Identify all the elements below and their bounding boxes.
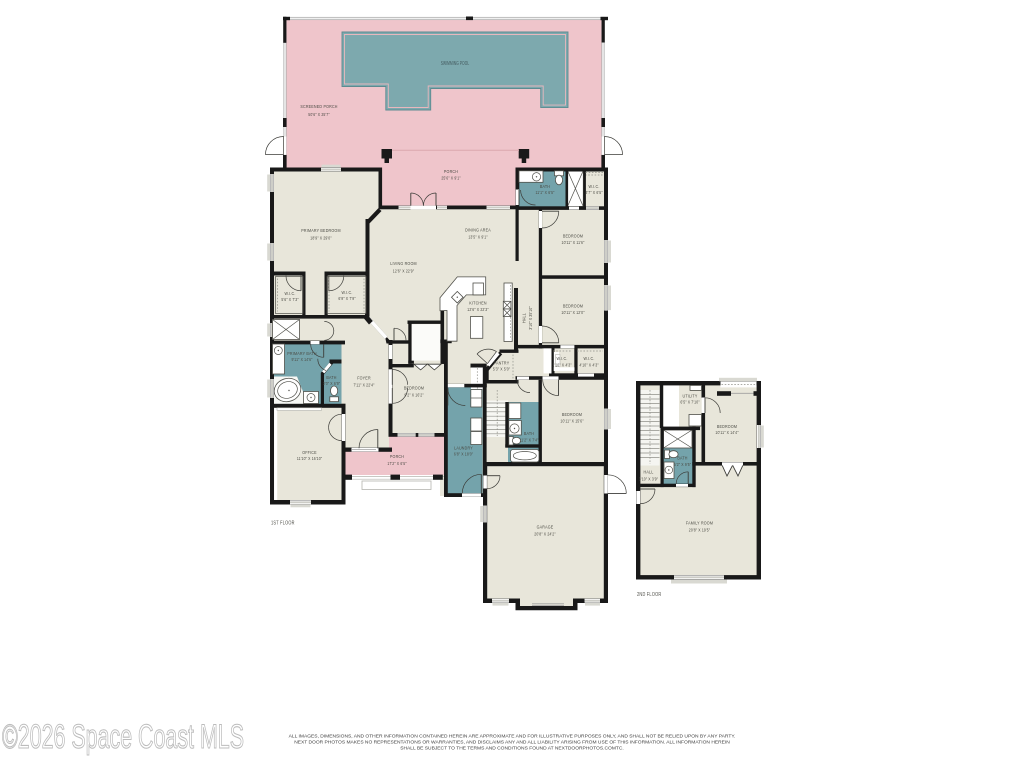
svg-text:4'10" X 4'3": 4'10" X 4'3"	[579, 363, 598, 368]
svg-text:FOYER: FOYER	[357, 376, 371, 381]
svg-text:10'11" X 11'6": 10'11" X 11'6"	[562, 240, 585, 245]
svg-text:W.I.C.: W.I.C.	[583, 356, 594, 361]
svg-text:BATH: BATH	[540, 184, 550, 189]
svg-text:20'8" X 19'5": 20'8" X 19'5"	[689, 528, 711, 533]
svg-text:3'10" X 3'9": 3'10" X 3'9"	[639, 477, 658, 482]
svg-text:12'6" X 22'3": 12'6" X 22'3"	[467, 307, 489, 312]
svg-text:OFFICE: OFFICE	[302, 450, 317, 455]
svg-text:W.I.C.: W.I.C.	[284, 291, 295, 296]
svg-text:BATH: BATH	[677, 456, 687, 461]
svg-text:W.I.C.: W.I.C.	[588, 184, 599, 189]
svg-text:LAUNDRY: LAUNDRY	[454, 446, 473, 451]
svg-text:10'11" X 12'0": 10'11" X 12'0"	[561, 310, 584, 315]
svg-text:HALL: HALL	[644, 470, 654, 475]
svg-text:NEXT DOOR PHOTOS MAKES NO REPR: NEXT DOOR PHOTOS MAKES NO REPRESENTATION…	[294, 740, 730, 746]
svg-text:11'10" X 16'10": 11'10" X 16'10"	[297, 456, 322, 461]
svg-text:BEDROOM: BEDROOM	[563, 304, 583, 309]
svg-text:9'11" X 14'6": 9'11" X 14'6"	[291, 357, 312, 362]
svg-text:13'5" X 9'1": 13'5" X 9'1"	[468, 235, 487, 240]
svg-text:11'2" X 7'4": 11'2" X 7'4"	[519, 438, 538, 443]
svg-text:PRIMARY BEDROOM: PRIMARY BEDROOM	[301, 228, 340, 233]
svg-text:BEDROOM: BEDROOM	[404, 386, 424, 391]
svg-text:1'10" X 4'3": 1'10" X 4'3"	[552, 363, 571, 368]
svg-text:2ND FLOOR: 2ND FLOOR	[637, 592, 661, 598]
svg-text:11'1" X 6'5": 11'1" X 6'5"	[535, 190, 554, 195]
svg-text:7'11" X 22'4": 7'11" X 22'4"	[353, 383, 374, 388]
svg-text:ALL IMAGES, DIMENSIONS, AND OT: ALL IMAGES, DIMENSIONS, AND OTHER INFORM…	[289, 734, 736, 740]
svg-text:HALL: HALL	[522, 313, 527, 323]
svg-text:18'9" X 29'0": 18'9" X 29'0"	[310, 236, 332, 241]
svg-text:PRIMARY BATH: PRIMARY BATH	[287, 351, 316, 356]
svg-text:LIVING ROOM: LIVING ROOM	[390, 261, 417, 266]
svg-text:GARAGE: GARAGE	[537, 525, 554, 530]
svg-text:KITCHEN: KITCHEN	[469, 301, 486, 306]
svg-text:10'11" X 15'6": 10'11" X 15'6"	[560, 419, 583, 424]
svg-text:BATH: BATH	[524, 431, 534, 436]
svg-text:5'3" X 5'0": 5'3" X 5'0"	[493, 367, 510, 372]
svg-text:SCREENED PORCH: SCREENED PORCH	[300, 104, 337, 109]
svg-text:6'9" X 7'9": 6'9" X 7'9"	[338, 296, 355, 301]
svg-text:50'6" X 25'7": 50'6" X 25'7"	[308, 112, 330, 117]
svg-text:5'2" X 9'5": 5'2" X 9'5"	[674, 462, 691, 467]
svg-text:25'6" X 9'1": 25'6" X 9'1"	[441, 175, 460, 180]
svg-text:BATH: BATH	[326, 375, 336, 380]
svg-text:SHALL BE SUBJECT TO THE TERMS: SHALL BE SUBJECT TO THE TERMS AND CONDIT…	[400, 746, 624, 752]
svg-text:20'8" X 24'2": 20'8" X 24'2"	[534, 532, 556, 537]
svg-text:©2026 Space Coast MLS: ©2026 Space Coast MLS	[2, 718, 244, 756]
svg-text:9'2" X 16'2": 9'2" X 16'2"	[404, 393, 423, 398]
svg-text:3'7" X 6'5": 3'7" X 6'5"	[585, 190, 602, 195]
svg-text:10'11" X 14'4": 10'11" X 14'4"	[715, 430, 738, 435]
svg-text:BEDROOM: BEDROOM	[717, 424, 737, 429]
svg-text:W.I.C.: W.I.C.	[341, 290, 352, 295]
svg-text:PANTRY: PANTRY	[494, 361, 510, 366]
svg-text:17'2" X 6'5": 17'2" X 6'5"	[387, 461, 406, 466]
svg-text:BEDROOM: BEDROOM	[563, 234, 583, 239]
svg-text:12'6" X 22'9": 12'6" X 22'9"	[393, 269, 415, 274]
svg-text:5'6" X 7'3": 5'6" X 7'3"	[281, 297, 298, 302]
svg-text:PORCH: PORCH	[390, 454, 404, 459]
svg-text:3'0" X 6'9": 3'0" X 6'9"	[323, 381, 340, 386]
svg-text:W.I.C.: W.I.C.	[556, 356, 567, 361]
svg-text:PORCH: PORCH	[444, 169, 458, 174]
svg-text:SWIMMING POOL: SWIMMING POOL	[441, 61, 470, 67]
svg-text:6'5" X 7'10": 6'5" X 7'10"	[680, 400, 699, 405]
svg-text:3'10" X 35'10": 3'10" X 35'10"	[528, 306, 533, 330]
svg-text:FAMILY ROOM: FAMILY ROOM	[686, 521, 713, 526]
svg-text:6'8" X 18'0": 6'8" X 18'0"	[454, 452, 473, 457]
svg-text:1ST FLOOR: 1ST FLOOR	[271, 521, 295, 527]
svg-text:BEDROOM: BEDROOM	[562, 412, 582, 417]
svg-text:DINING AREA: DINING AREA	[465, 228, 491, 233]
svg-text:UTILITY: UTILITY	[683, 394, 698, 399]
